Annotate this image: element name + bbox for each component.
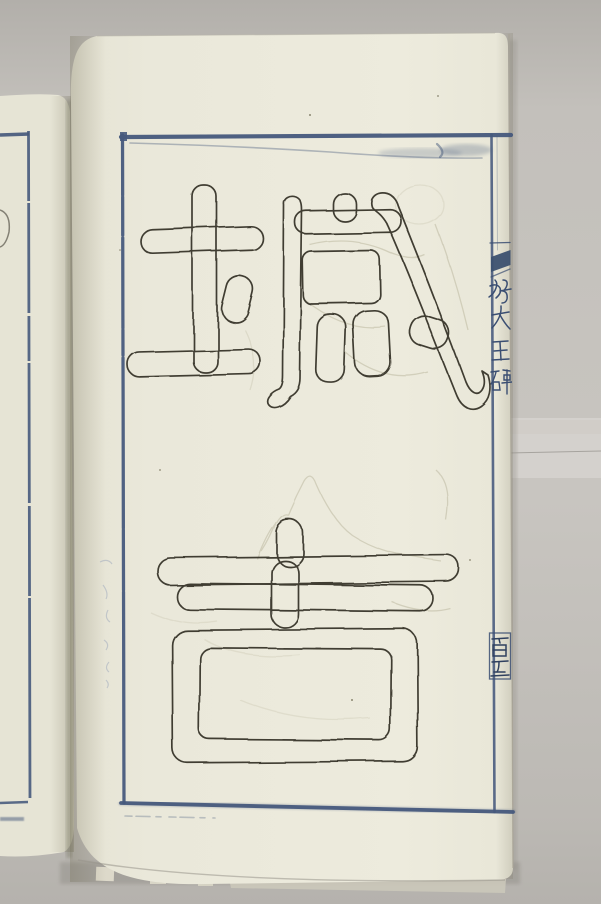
photo-canvas [0,0,601,904]
frame-corner-block [120,132,127,141]
frame-top [121,135,511,137]
strip-top-rule [490,243,510,244]
right-page-paper [71,33,513,884]
left-page [0,94,74,856]
right-page [70,33,513,884]
right-gutter-shade [70,36,106,882]
book-photograph: 城 吉 好大王碑 百五 [0,0,601,904]
frame-left [123,135,125,803]
frame-right-faint [497,137,498,250]
backdrop-band [508,418,601,478]
frame-smudge-blob [440,144,492,156]
